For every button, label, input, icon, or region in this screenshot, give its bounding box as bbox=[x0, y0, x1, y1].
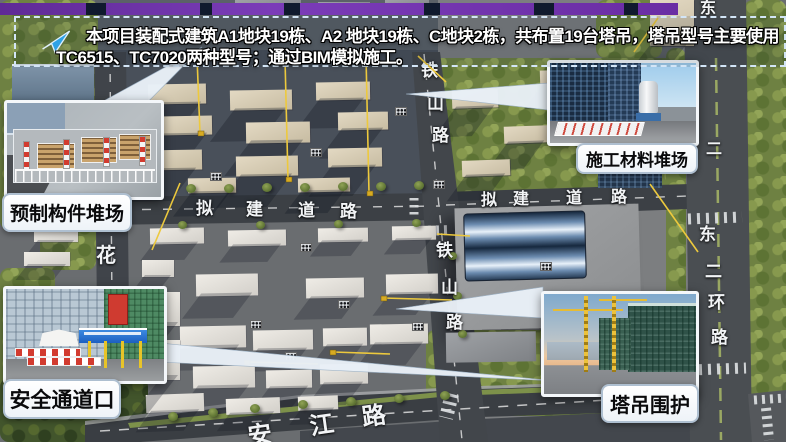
safety-passage-photo bbox=[6, 289, 164, 381]
callout-image-precast-yard bbox=[4, 100, 164, 200]
callout-image-safety-passage bbox=[3, 286, 167, 384]
pointer-arrow-material bbox=[406, 83, 549, 110]
glass-building bbox=[628, 303, 696, 372]
precast-yard-photo bbox=[7, 103, 161, 197]
striped-post bbox=[23, 141, 30, 171]
canopy-leg bbox=[121, 341, 124, 369]
crane-mast bbox=[584, 296, 588, 372]
callout-label-crane-enclosure: 塔吊围护 bbox=[601, 384, 699, 423]
pointer-arrow-safety bbox=[159, 343, 557, 381]
top-bar-notch bbox=[534, 3, 554, 15]
striped-post bbox=[139, 136, 146, 166]
striped-barrier bbox=[15, 348, 80, 357]
distant-city bbox=[547, 342, 605, 360]
pointer-arrow-crane bbox=[396, 287, 543, 318]
white-fence bbox=[15, 169, 155, 182]
material-storage-fence bbox=[554, 122, 644, 136]
banner-text-line2: TC6515、TC7020两种型号；通过BIM模拟施工。 bbox=[56, 43, 412, 68]
presentation-slide: 铁山路铁山路拟建道路拟建道路冲花东二东二环路安江路 bbox=[0, 0, 786, 442]
callout-image-crane-enclosure bbox=[541, 291, 699, 397]
top-bar-notch bbox=[424, 3, 440, 15]
striped-post bbox=[63, 139, 70, 169]
canopy-leg bbox=[104, 341, 107, 369]
red-hoist bbox=[108, 294, 127, 325]
callout-label-precast-yard: 预制构件堆场 bbox=[2, 193, 132, 232]
callout-image-material-yard bbox=[547, 60, 699, 146]
top-bar-notch bbox=[200, 3, 212, 15]
top-bar-notch bbox=[624, 3, 638, 15]
title-banner: 本项目装配式建筑A1地块19栋、A2 地块19栋、C地块2栋，共布置19台塔吊，… bbox=[14, 16, 786, 67]
striped-barrier bbox=[27, 357, 102, 366]
top-bar-notch bbox=[86, 3, 106, 15]
crane-enclosure-photo bbox=[544, 294, 696, 394]
callout-label-material-yard: 施工材料堆场 bbox=[576, 143, 698, 174]
material-yard-photo bbox=[550, 63, 696, 143]
highrise-tower bbox=[550, 63, 608, 127]
crane-mast bbox=[612, 296, 616, 372]
crane-jib bbox=[599, 299, 648, 301]
striped-post bbox=[103, 137, 110, 167]
cement-silo bbox=[639, 81, 658, 113]
component-stack bbox=[81, 137, 117, 163]
slide-top-bar bbox=[0, 3, 678, 15]
canopy-leg bbox=[139, 341, 142, 369]
callout-label-safety-passage: 安全通道口 bbox=[3, 379, 121, 419]
top-bar-notch bbox=[284, 3, 300, 15]
component-stack bbox=[119, 134, 151, 160]
